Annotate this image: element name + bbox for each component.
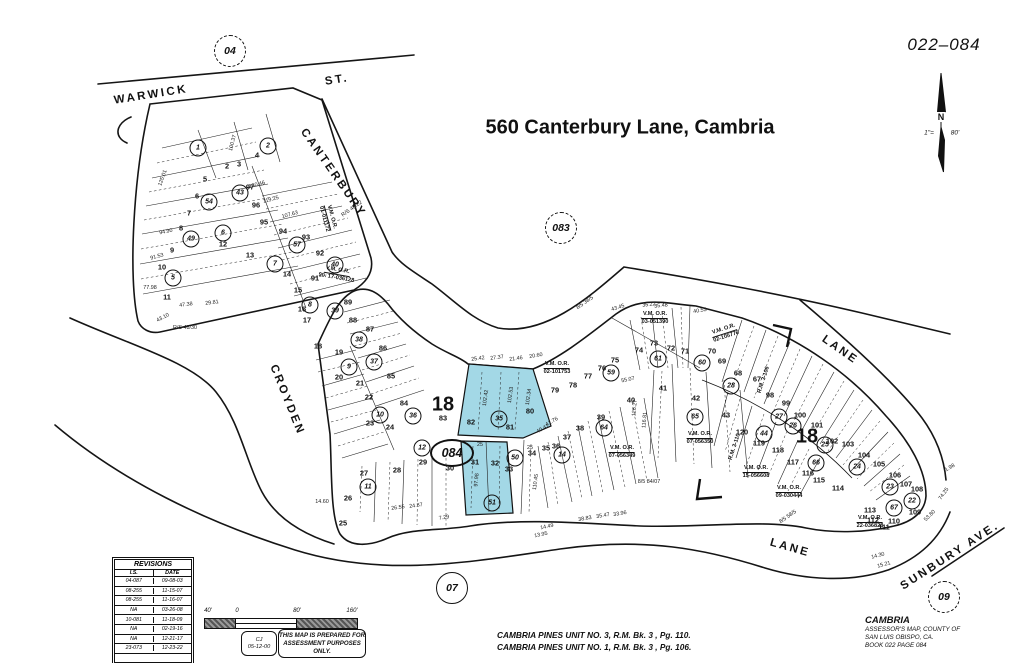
parcel-circle: 66 (808, 455, 825, 472)
revision-row: NA02-19-16 (115, 625, 191, 635)
adjacent-sheet-circle: 04 (214, 35, 246, 67)
lot-number: 24 (386, 423, 394, 432)
recorder-note: V.M. O.R.22-036828 (857, 515, 884, 529)
scale-bar-seg-right (297, 619, 357, 628)
parcel-circle: 60 (694, 355, 711, 372)
north-label: N (937, 112, 946, 122)
parcel-circle: 59 (603, 365, 620, 382)
lot-number: 10 (158, 263, 166, 272)
parcel-circle: 38 (351, 332, 368, 349)
lot-number: 74 (635, 346, 643, 355)
parcel-circle: 14 (554, 447, 571, 464)
lot-number: 26 (344, 494, 352, 503)
parcel-circle: 54 (201, 194, 218, 211)
parcel-circle: 9 (341, 359, 358, 376)
sheet-number: 022–084 (907, 35, 980, 55)
parcel-circle: 7 (267, 256, 284, 273)
lot-number: 96 (252, 201, 260, 210)
parcel-circle: 1 (190, 140, 207, 157)
lot-number: 28 (393, 466, 401, 475)
lot-number: 43 (722, 411, 730, 420)
lot-number: 35 (542, 444, 550, 453)
lot-number: 4 (255, 151, 259, 160)
revision-row: 10-08111-18-09 (115, 615, 191, 625)
dimension-label: 25 (527, 445, 533, 451)
parcel-circle: 57 (289, 237, 306, 254)
scale-label-40: 40' (204, 608, 212, 614)
parcel-circle: 50 (507, 450, 524, 467)
lot-number: 27 (360, 469, 368, 478)
lot-number: 22 (365, 393, 373, 402)
parcel-circle: 8 (302, 297, 319, 314)
lot-number: 6 (195, 192, 199, 201)
lot-number: 105 (873, 460, 885, 469)
lot-number: 110 (888, 517, 900, 526)
parcel-circle: 35 (491, 411, 508, 428)
parcel-circle: 44 (756, 426, 773, 443)
lot-number: 99 (782, 399, 790, 408)
lot-number: 115 (813, 476, 825, 485)
lot-number: 77 (584, 372, 592, 381)
lot-number: 21 (356, 379, 364, 388)
lot-number: 13 (246, 251, 254, 260)
revisions-title: REVISIONS (115, 560, 191, 570)
lot-number: 87 (366, 325, 374, 334)
dimension-label: 97.98 (473, 473, 480, 487)
block-number: 18 (432, 394, 454, 417)
recorder-note: V.M. O.R.15-056608 (743, 465, 770, 479)
lot-number: 85 (387, 372, 395, 381)
parcel-circle: 61 (650, 351, 667, 368)
lot-number: 37 (563, 433, 571, 442)
dimension-label: 14.60 (315, 499, 329, 505)
scale-label-160: 160' (346, 608, 357, 614)
lot-number: 113 (864, 506, 876, 515)
revisions-table: REVISIONS I.S. DATE 04-08709-08-0308-255… (112, 557, 194, 663)
parcel-circle: 36 (405, 408, 422, 425)
lot-number: 118 (772, 446, 784, 455)
recorder-note: V.M. O.R.03-051390 (642, 311, 669, 325)
credits-line2: SAN LUIS OBISPO, CA. (865, 634, 960, 642)
scale-bar-seg-mid (236, 619, 297, 628)
assessor-credits: CAMBRIA ASSESSOR'S MAP, COUNTY OF SAN LU… (865, 615, 960, 649)
parcel-circle: 49 (183, 231, 200, 248)
lot-number: 29 (419, 458, 427, 467)
recorder-note: V.M. O.R.02-101753 (544, 361, 571, 375)
scale-note-left: 1"= (924, 130, 934, 137)
revision-row: NA12-21-17 (115, 635, 191, 645)
adjacent-sheet-circle: 07 (436, 572, 468, 604)
parcel-circle: 67 (886, 500, 903, 517)
lot-number: 31 (471, 458, 479, 467)
revision-row: 08-25511-16-07 (115, 596, 191, 606)
drafter-initials: CJ (242, 637, 276, 644)
highlight-parcel-35 (458, 364, 551, 438)
lot-number: 78 (569, 381, 577, 390)
lot-number: 3 (237, 160, 241, 169)
dimension-label: 77.98 (143, 285, 157, 291)
lot-number: 82 (467, 418, 475, 427)
lot-number: 25 (339, 519, 347, 528)
revision-row: 04-08709-08-03 (115, 577, 191, 587)
parcel-circle: 25 (817, 437, 834, 454)
lot-number: 17 (303, 316, 311, 325)
lot-number: 98 (766, 391, 774, 400)
parcel-circle: 23 (882, 479, 899, 496)
revision-row: 08-25511-15-07 (115, 587, 191, 597)
parcel-circle: 6 (215, 225, 232, 242)
survey-mark: 8/5 84/07 (638, 479, 660, 485)
lot-number: 71 (681, 347, 689, 356)
assessment-disclaimer: THIS MAP IS PREPARED FOR ASSESSMENT PURP… (278, 629, 366, 658)
disclaimer-line1: THIS MAP IS PREPARED FOR (279, 632, 365, 640)
subdivision-note-unit3: CAMBRIA PINES UNIT NO. 3, R.M. Bk. 3 , P… (497, 630, 691, 642)
lot-number: 95 (260, 218, 268, 227)
lot-number: 11 (163, 293, 171, 302)
dimension-label: 25 (477, 442, 483, 448)
revision-row: 23-07312-23-22 (115, 644, 191, 654)
recorder-note: V.M. O.R.09-030444 (776, 485, 803, 499)
lot-number: 79 (551, 386, 559, 395)
lot-number: 72 (667, 344, 675, 353)
disclaimer-line2: ASSESSMENT PURPOSES ONLY. (279, 640, 365, 656)
scale-bar-seg-left (205, 619, 236, 628)
parcel-circle: 12 (414, 440, 431, 457)
lot-number: 30 (446, 464, 454, 473)
scale-bar (204, 618, 358, 629)
parcel-circle: 22 (904, 493, 921, 510)
lot-number: 7 (187, 209, 191, 218)
lot-number: 32 (491, 459, 499, 468)
lot-number: 81 (506, 423, 514, 432)
revisions-col-is: I.S. (115, 570, 154, 576)
revision-row: NA03-26-08 (115, 606, 191, 616)
parcel-circle: 10 (372, 407, 389, 424)
lot-number: 84 (400, 399, 408, 408)
parcel-circle: 2 (260, 138, 277, 155)
revisions-header: I.S. DATE (115, 570, 191, 577)
recorder-note: V.M. O.R.07-056349 (609, 445, 636, 459)
lot-number: 75 (611, 356, 619, 365)
lot-number: 92 (316, 249, 324, 258)
lot-number: 41 (659, 384, 667, 393)
lot-number: 15 (294, 286, 302, 295)
lot-number: 70 (708, 347, 716, 356)
lot-number: 14 (283, 270, 291, 279)
credits-line3: BOOK 022 PAGE 084 (865, 642, 960, 650)
lot-number: 38 (576, 424, 584, 433)
lot-number: 69 (718, 357, 726, 366)
revisions-rows: 04-08709-08-0308-25511-15-0708-25511-16-… (115, 577, 191, 663)
credits-city: CAMBRIA (865, 615, 960, 626)
lot-number: 68 (734, 369, 742, 378)
lot-number: 5 (203, 175, 207, 184)
scale-note-right: 80' (951, 130, 959, 137)
parcel-circle: 5 (165, 270, 182, 287)
parcel-circle: 28 (723, 378, 740, 395)
lot-number: 19 (335, 348, 343, 357)
scale-label-0: 0 (235, 608, 238, 614)
parcel-circle: 39 (327, 303, 344, 320)
lot-number: 18 (314, 342, 322, 351)
parcel-circle: 43 (232, 185, 249, 202)
lot-number: 89 (344, 298, 352, 307)
parcel-circle: 11 (360, 479, 377, 496)
lot-number: 94 (279, 227, 287, 236)
lot-number: 42 (692, 394, 700, 403)
lot-number: 114 (832, 484, 844, 493)
recorder-note: V.M. O.R.07-056350 (687, 431, 714, 445)
adjacent-sheet-circle: 09 (928, 581, 960, 613)
lot-number: 103 (842, 440, 854, 449)
drafter-stamp: CJ 05-12-00 (241, 631, 277, 656)
adjacent-sheet-circle: 083 (545, 212, 577, 244)
drafter-date: 05-12-00 (242, 644, 276, 651)
scale-label-80: 80' (293, 608, 301, 614)
lot-number: 117 (787, 458, 799, 467)
parcel-circle: 64 (596, 420, 613, 437)
lot-number: 73 (650, 339, 658, 348)
page-title: 560 Canterbury Lane, Cambria (486, 117, 775, 140)
lot-number: 80 (526, 407, 534, 416)
lot-number: 8 (179, 224, 183, 233)
parcel-circle: 65 (687, 409, 704, 426)
survey-mark: R/S 48/30 (173, 325, 197, 331)
north-arrow-icon (938, 73, 946, 172)
parcel-circle: 51 (484, 495, 501, 512)
subdivision-note-unit1: CAMBRIA PINES UNIT NO. 1, R.M. Bk. 3 , P… (497, 642, 691, 654)
lot-number: 86 (379, 344, 387, 353)
lot-number: 20 (335, 373, 343, 382)
lot-number: 88 (349, 316, 357, 325)
lot-number: 2 (225, 162, 229, 171)
assessor-map-page: 560 Canterbury Lane, Cambria 022–084 N 1… (0, 0, 1024, 663)
credits-line1: ASSESSOR'S MAP, COUNTY OF (865, 626, 960, 634)
block-number: 18 (796, 426, 818, 449)
parcel-circle: 24 (849, 459, 866, 476)
parcel-circle: 37 (366, 354, 383, 371)
lot-number: 9 (170, 246, 174, 255)
revisions-col-date: DATE (154, 570, 192, 576)
highlighted-parcels (458, 364, 551, 515)
revision-row (115, 654, 191, 663)
